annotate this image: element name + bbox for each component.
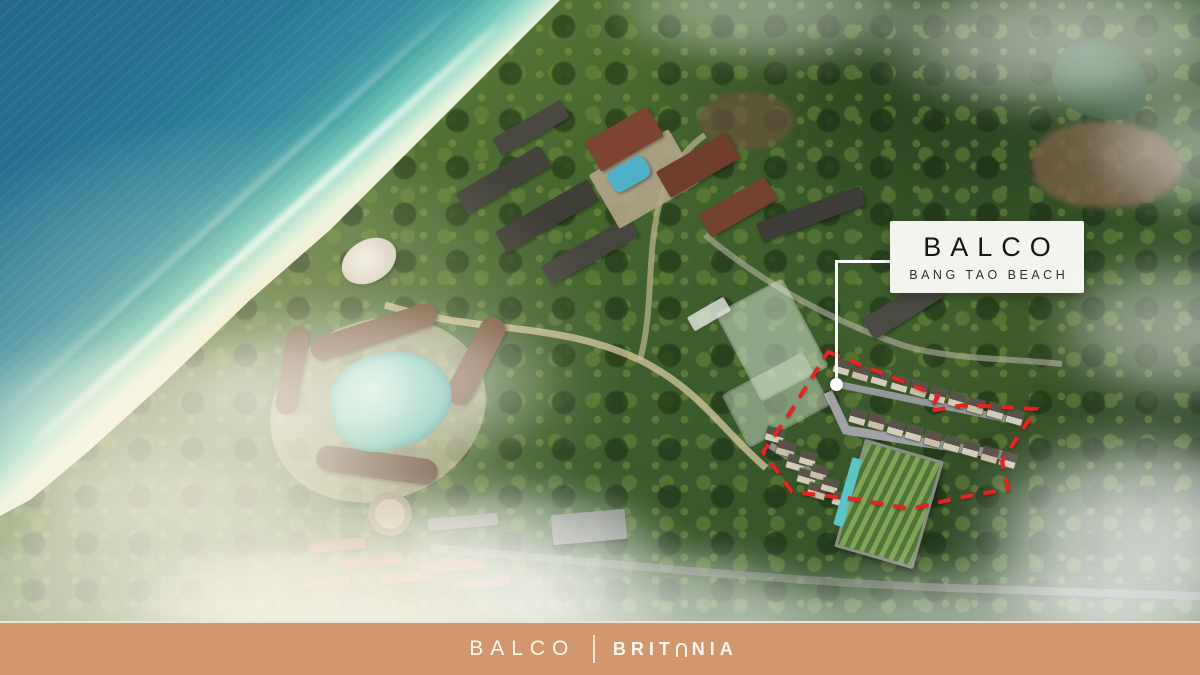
sun-glare [0, 120, 620, 620]
callout-subtitle: BANG TAO BEACH [906, 268, 1068, 282]
brand-britania-prefix: BRIT [613, 639, 675, 660]
site-marker-dot [830, 378, 843, 391]
brand-balco: BALCO [462, 637, 575, 661]
brand-britania-suffix: NIA [692, 639, 738, 660]
brand-britania: BRITNIA [613, 639, 738, 660]
arch-icon [676, 643, 687, 656]
leader-line [837, 260, 891, 263]
brand-bar: BALCO BRITNIA [0, 623, 1200, 675]
callout-title: BALCO [914, 232, 1060, 263]
dirt-clearing [1032, 122, 1182, 208]
location-callout-card: BALCO BANG TAO BEACH [890, 221, 1084, 293]
scene: BALCO BANG TAO BEACH [0, 0, 1200, 623]
aerial-site-plan: BALCO BANG TAO BEACH BALCO BRITNIA [0, 0, 1200, 675]
brand-divider [593, 635, 595, 663]
leader-line [835, 260, 838, 381]
